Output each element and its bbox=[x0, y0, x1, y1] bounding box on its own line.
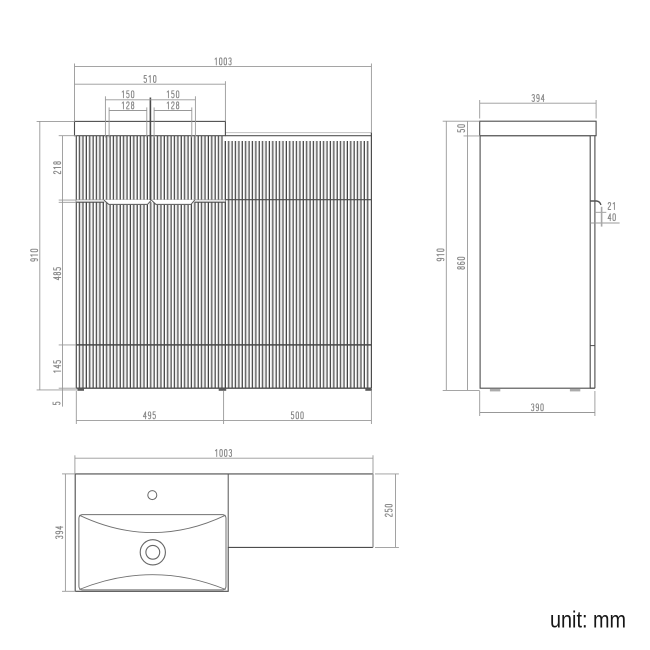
svg-text:unit: mm: unit: mm bbox=[550, 606, 626, 632]
